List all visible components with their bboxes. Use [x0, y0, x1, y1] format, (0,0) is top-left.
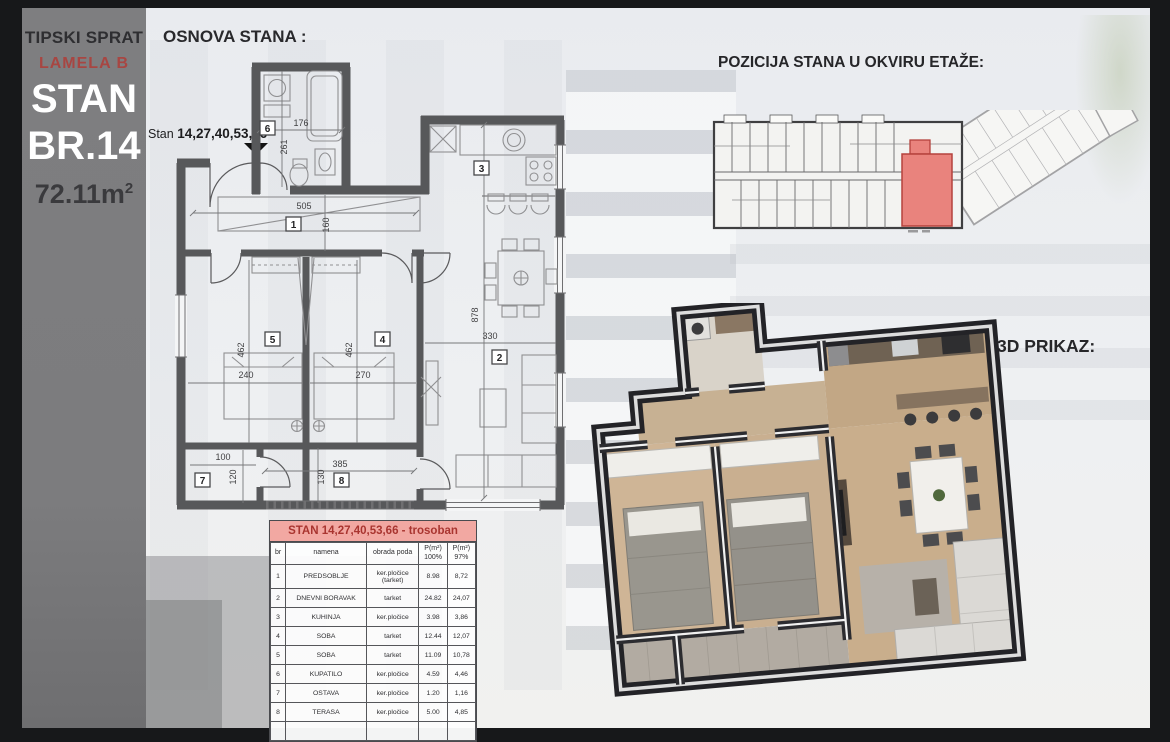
svg-text:1: 1 — [291, 220, 297, 231]
room-label-5: 5 — [265, 332, 280, 346]
sidebar: TIPSKI SPRAT LAMELA B STAN BR.14 72.11m2 — [22, 8, 146, 728]
svg-text:6: 6 — [265, 124, 271, 135]
area-sup: 2 — [125, 180, 133, 197]
frame-left — [0, 0, 22, 728]
dim-living-depth: 878 — [470, 307, 480, 322]
col-header-namena: namena — [286, 543, 367, 565]
svg-text:2: 2 — [497, 353, 503, 364]
plan-windows — [175, 145, 566, 511]
dim-room4-depth: 462 — [344, 342, 354, 357]
dim-bath-width: 176 — [293, 118, 308, 128]
table-row: 1PREDSOBLJEker.pločice (tarket)8.988,72 — [271, 565, 476, 589]
dim-ostava-width: 100 — [215, 452, 230, 462]
svg-text:5: 5 — [270, 335, 276, 346]
table-row: 7OSTAVAker.pločice1.201,16 — [271, 684, 476, 703]
position-highlight-unit — [902, 140, 952, 233]
frame-top — [0, 0, 1170, 8]
svg-text:8: 8 — [339, 476, 345, 487]
dim-ostava-depth: 120 — [228, 469, 238, 484]
dim-terrace-width: 385 — [332, 459, 347, 469]
table-row-partial — [271, 722, 476, 741]
dim-living-width: 330 — [482, 331, 497, 341]
floorplan-sheet: TIPSKI SPRAT LAMELA B STAN BR.14 72.11m2… — [0, 0, 1170, 728]
table-row: 5SOBAtarket11.0910,78 — [271, 646, 476, 665]
area-table-title: STAN 14,27,40,53,66 - trosoban — [270, 521, 476, 542]
table-row: 3KUHINJAker.pločice3.983,86 — [271, 608, 476, 627]
lamela-label: LAMELA B — [22, 55, 146, 73]
unit-word: STAN — [22, 77, 146, 121]
plan-room-labels: 1 2 3 4 5 6 7 8 — [195, 121, 507, 487]
plan-heading: OSNOVA STANA : — [163, 27, 307, 47]
dim-room4-width: 270 — [355, 370, 370, 380]
room-label-2: 2 — [492, 350, 507, 364]
table-row: 6KUPATILOker.pločice4.594,46 — [271, 665, 476, 684]
col-header-br: br — [271, 543, 286, 565]
col-header-obrada: obrada poda — [366, 543, 419, 565]
table-row: 2DNEVNI BORAVAKtarket24.8224,07 — [271, 589, 476, 608]
room-label-4: 4 — [375, 332, 390, 346]
svg-text:7: 7 — [200, 476, 206, 487]
table-row: 8TERASAker.pločice5.004,85 — [271, 703, 476, 722]
room-label-6: 6 — [260, 121, 275, 135]
dim-room5-width: 240 — [238, 370, 253, 380]
area-value: 72.11m — [35, 179, 125, 209]
unit-number: BR.14 — [22, 121, 146, 171]
svg-text:3: 3 — [479, 164, 485, 175]
position-heading: POZICIJA STANA U OKVIRU ETAŽE: — [718, 54, 984, 72]
room-label-8: 8 — [334, 473, 349, 487]
svg-text:4: 4 — [380, 335, 386, 346]
position-plan — [710, 110, 1155, 238]
area-table: STAN 14,27,40,53,66 - trosoban br namena… — [269, 520, 477, 742]
plan-dimension-lines — [188, 71, 556, 503]
dim-terrace-depth: 130 — [316, 469, 326, 484]
render-3d — [578, 303, 1030, 728]
table-header-row: br namena obrada poda P(m²)100% P(m²)97% — [271, 543, 476, 565]
col-header-p100: P(m²)100% — [419, 543, 447, 565]
room-label-1: 1 — [286, 217, 301, 231]
col-header-p97: P(m²)97% — [447, 543, 475, 565]
dim-hall-depth: 160 — [321, 217, 331, 232]
unit-area: 72.11m2 — [22, 179, 146, 210]
dim-hall-width: 505 — [296, 201, 311, 211]
dim-room5-depth: 462 — [236, 342, 246, 357]
floor-type-label: TIPSKI SPRAT — [22, 28, 146, 48]
table-row: 4SOBAtarket12.4412,07 — [271, 627, 476, 646]
room-label-3: 3 — [474, 161, 489, 175]
room-label-7: 7 — [195, 473, 210, 487]
dim-bath-depth: 261 — [279, 139, 289, 154]
floorplan-drawing: 505 160 176 261 462 240 462 270 878 330 … — [148, 55, 580, 525]
